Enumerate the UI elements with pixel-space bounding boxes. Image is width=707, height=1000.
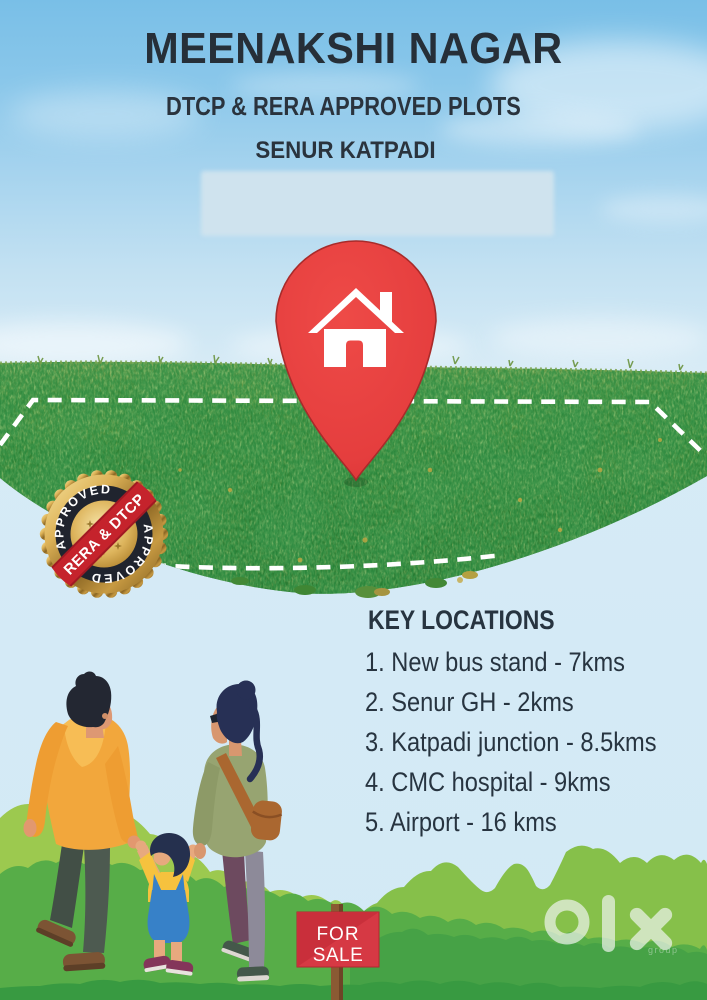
svg-text:FOR: FOR (316, 924, 359, 945)
svg-text:SALE: SALE (313, 945, 364, 966)
svg-text:group: group (648, 945, 679, 955)
